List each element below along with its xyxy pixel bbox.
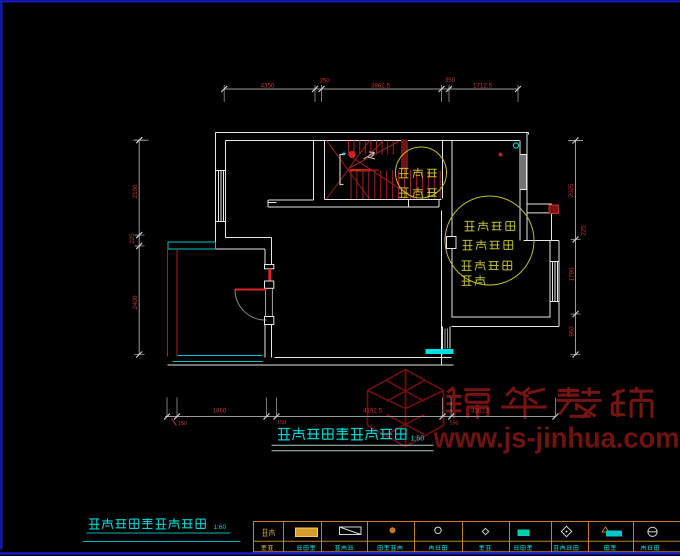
svg-text:225: 225 <box>129 233 136 244</box>
svg-text:4350: 4350 <box>261 83 275 90</box>
svg-text:1860: 1860 <box>213 408 227 415</box>
svg-text:www.js-jinhua.com: www.js-jinhua.com <box>433 423 680 455</box>
svg-text:225: 225 <box>581 225 588 236</box>
svg-text:150: 150 <box>449 421 458 427</box>
svg-text:2100: 2100 <box>132 184 139 198</box>
svg-text:1790: 1790 <box>569 267 576 281</box>
svg-text:2025: 2025 <box>568 183 575 197</box>
svg-text:1:60: 1:60 <box>214 524 227 531</box>
svg-text:1712.5: 1712.5 <box>473 83 492 90</box>
svg-text:150: 150 <box>277 420 286 426</box>
svg-text:2400: 2400 <box>132 295 139 309</box>
svg-text:150: 150 <box>178 421 187 427</box>
svg-text:3862.5: 3862.5 <box>371 83 390 90</box>
svg-text:960: 960 <box>569 326 576 337</box>
svg-text:350: 350 <box>445 77 456 84</box>
svg-text:1:60: 1:60 <box>411 436 425 443</box>
svg-text:3362.5: 3362.5 <box>471 408 490 415</box>
svg-text:350: 350 <box>319 78 330 85</box>
svg-text:4162.5: 4162.5 <box>363 408 382 415</box>
